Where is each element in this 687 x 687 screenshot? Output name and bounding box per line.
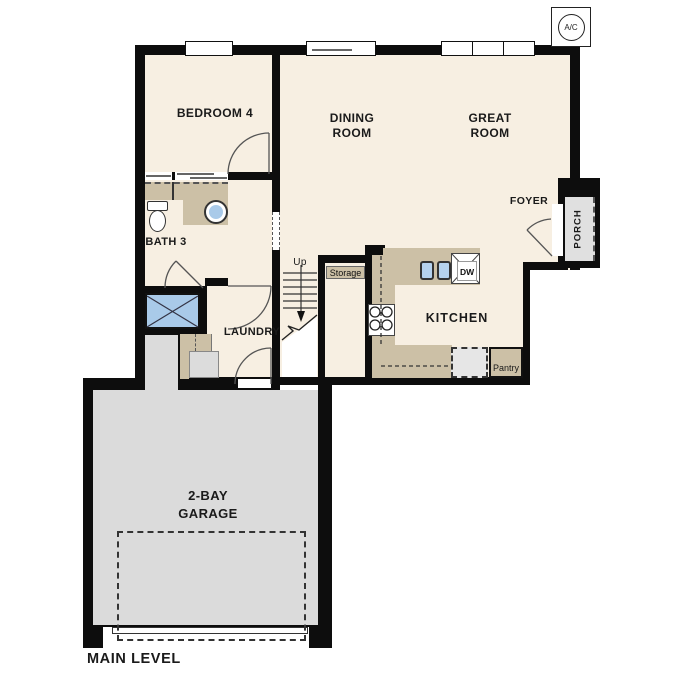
washer (189, 351, 219, 378)
closet-opening-left (145, 172, 172, 180)
front-door-opening (552, 204, 563, 256)
ac-unit: A/C (551, 7, 591, 47)
bedroom-window (185, 41, 233, 56)
toilet-bowl (149, 210, 166, 232)
ac-circle-icon: A/C (558, 14, 585, 41)
kitchen-sink-left (420, 261, 434, 280)
dishwasher-label-chip: DW (457, 261, 477, 281)
driveway-dashed-outline (117, 531, 306, 641)
level-title: MAIN LEVEL (87, 650, 247, 668)
range-stove (368, 304, 395, 336)
foyer-label: FOYER (504, 195, 554, 208)
laundry-top-wall (205, 278, 228, 286)
dishwasher-label: DW (460, 267, 474, 277)
refrigerator (451, 347, 488, 378)
pantry: Pantry (489, 347, 523, 378)
ac-label: A/C (564, 23, 577, 32)
foyer-bottom-wall (523, 262, 568, 270)
floor-plan: PORCH (0, 0, 687, 687)
stairs-up-label: Up (288, 257, 312, 270)
kitchen-counter-bottom (372, 345, 452, 378)
tub-right-wall (200, 286, 207, 334)
porch: PORCH (565, 197, 595, 261)
great-room-window (441, 41, 535, 56)
storage-top-wall (318, 255, 372, 263)
bedroom-closet-shelf (145, 182, 228, 200)
kitchen-label: KITCHEN (412, 311, 502, 327)
bedroom4-label: BEDROOM 4 (155, 106, 275, 121)
bath-sink-basin (209, 205, 223, 219)
hall-wall-lower (272, 250, 280, 385)
great-window-divider-1 (472, 41, 473, 56)
great-window-divider-2 (503, 41, 504, 56)
cased-opening (272, 212, 280, 250)
kitchen-right-wall (523, 262, 530, 385)
tub-top-wall (143, 286, 207, 293)
kitchen-wall-stub (365, 245, 385, 255)
exterior-area (530, 270, 687, 390)
bath3-label: BATH 3 (141, 236, 191, 250)
great-room-label: GREAT ROOM (455, 111, 525, 141)
dining-room-label: DINING ROOM (317, 111, 387, 141)
laundry-counter-divider (195, 334, 197, 351)
pantry-label: Pantry (493, 363, 519, 376)
stair-right-wall (318, 263, 325, 385)
closet-opening-right (175, 172, 228, 180)
kitchen-sink-right (437, 261, 451, 280)
laundry-label: LAUNDRY (217, 326, 287, 340)
laundry-garage-door-opening (238, 379, 271, 388)
garage-entry-alcove (145, 333, 178, 390)
storage-label: Storage (330, 268, 362, 278)
garage-label: 2-BAY GARAGE (158, 487, 258, 522)
porch-label: PORCH (573, 209, 585, 248)
bathtub (145, 293, 200, 329)
dining-window (306, 41, 376, 56)
hall-wall-upper (272, 45, 280, 212)
laundry-side-counter (180, 351, 189, 379)
closet-divider (172, 182, 174, 200)
storage-closet-label-box: Storage (326, 266, 365, 279)
